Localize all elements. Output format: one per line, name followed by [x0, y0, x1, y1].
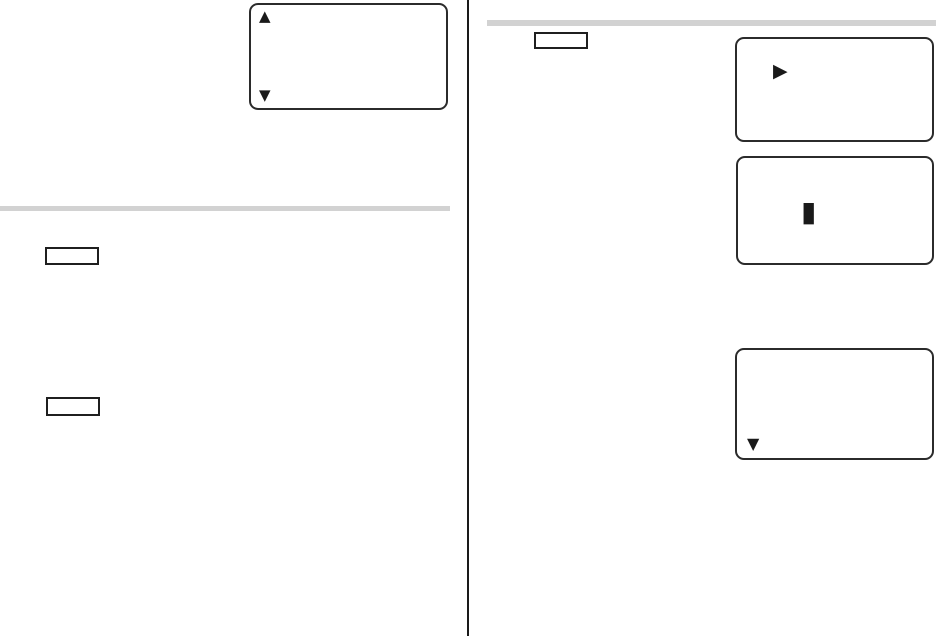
note-label-box-right [534, 32, 588, 49]
note-label-box-2 [46, 397, 100, 416]
down-arrow-icon: ▼ [747, 436, 759, 452]
lcd-display-right-1: ▶ [735, 37, 934, 142]
text-cursor-block-icon: ▮ [801, 198, 816, 226]
section-rule-right [487, 20, 936, 26]
manual-page: ▲ ▼ ▶ ▮ ▼ [0, 0, 936, 636]
down-arrow-icon: ▼ [259, 88, 271, 103]
right-arrow-icon: ▶ [773, 62, 788, 81]
up-arrow-icon: ▲ [259, 9, 271, 24]
lcd-display-left: ▲ ▼ [249, 3, 448, 110]
lcd-display-right-2: ▮ [736, 156, 934, 265]
note-label-box-1 [45, 247, 99, 265]
section-rule-left [0, 206, 450, 211]
lcd-display-right-3: ▼ [735, 348, 934, 460]
column-divider [467, 0, 469, 636]
